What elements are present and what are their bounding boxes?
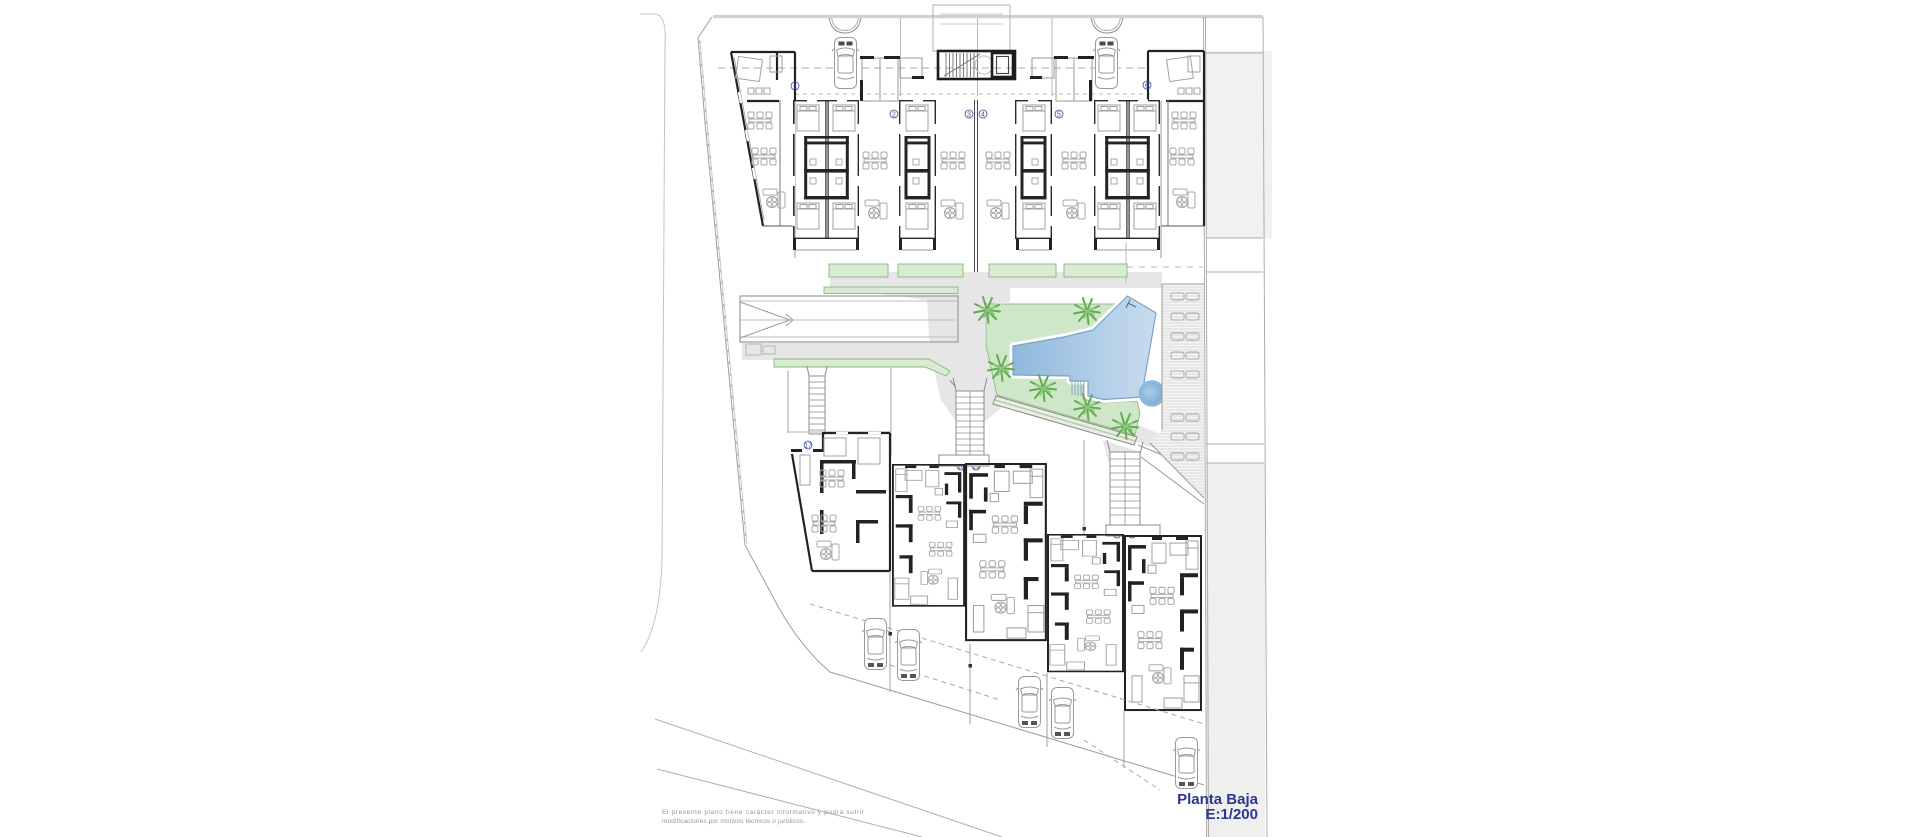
svg-text:5: 5 xyxy=(1057,112,1061,119)
svg-text:3: 3 xyxy=(967,112,971,119)
svg-text:El presente plano tiene caráct: El presente plano tiene carácter informa… xyxy=(662,809,865,816)
svg-text:17: 17 xyxy=(804,443,812,450)
svg-text:4: 4 xyxy=(981,112,985,119)
svg-text:modificaciones por motivos téc: modificaciones por motivos técnicos o ju… xyxy=(662,818,805,825)
svg-text:2: 2 xyxy=(892,112,896,119)
svg-text:E:1/200: E:1/200 xyxy=(1205,806,1258,823)
svg-text:1: 1 xyxy=(793,84,797,91)
svg-text:6: 6 xyxy=(1145,83,1149,90)
